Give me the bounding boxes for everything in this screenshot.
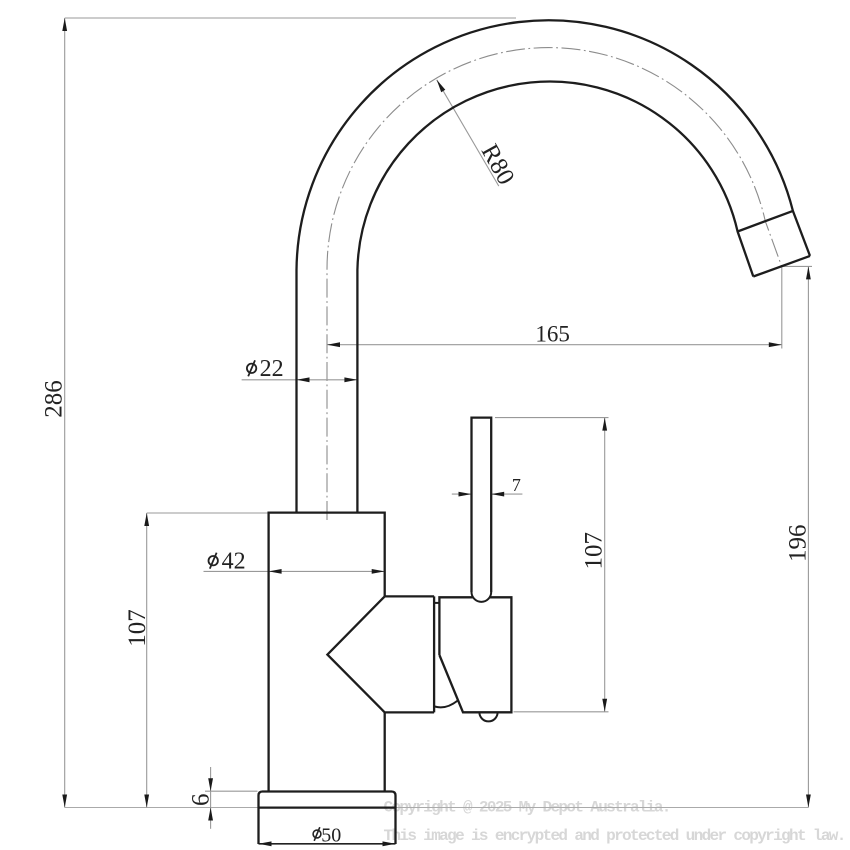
svg-text:50: 50 bbox=[321, 824, 341, 846]
svg-text:42: 42 bbox=[222, 549, 246, 575]
svg-text:6: 6 bbox=[187, 794, 214, 807]
svg-text:107: 107 bbox=[580, 532, 607, 570]
svg-text:286: 286 bbox=[41, 380, 68, 418]
svg-text:196: 196 bbox=[784, 524, 811, 562]
svg-text:165: 165 bbox=[535, 322, 570, 347]
svg-text:7: 7 bbox=[512, 475, 521, 495]
svg-text:R80: R80 bbox=[476, 140, 520, 190]
svg-text:22: 22 bbox=[260, 356, 284, 382]
svg-text:107: 107 bbox=[124, 609, 151, 647]
svg-text:This image is encrypted and pr: This image is encrypted and protected un… bbox=[384, 827, 845, 845]
